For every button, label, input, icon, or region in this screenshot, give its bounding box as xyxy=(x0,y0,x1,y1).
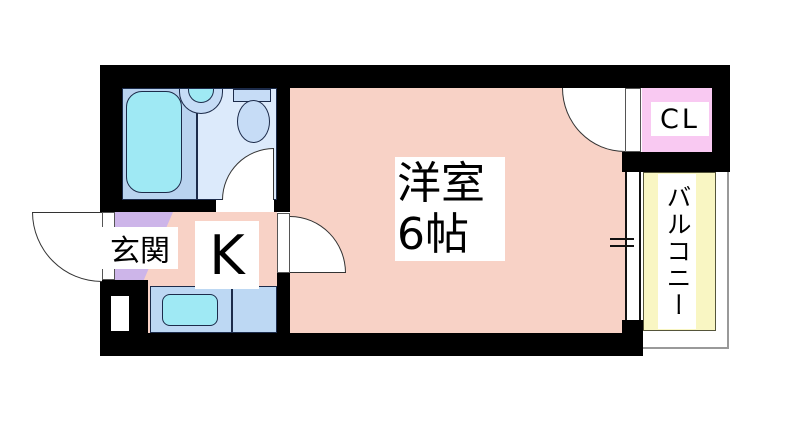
entry-door-swing xyxy=(32,212,102,282)
closet-label: CL xyxy=(651,102,709,136)
kitchen-label-text: K xyxy=(209,224,244,287)
main-room-label: 洋室 6帖 xyxy=(395,157,505,261)
wall-bottom xyxy=(100,333,643,356)
closet-door-leaf xyxy=(625,88,641,152)
kitchen-sink xyxy=(162,294,218,326)
balcony-outer-edge-vertical xyxy=(727,172,729,349)
closet-label-text: CL xyxy=(660,104,700,135)
entrance-label: 玄関 xyxy=(102,227,178,269)
balcony-window-tick-lower xyxy=(610,245,634,247)
wall-partition-lower xyxy=(277,273,290,333)
wall-left-upper xyxy=(100,65,122,212)
wall-partition-upper xyxy=(277,88,290,212)
bathtub xyxy=(126,91,182,193)
main-room-name: 洋室 xyxy=(397,158,485,209)
kitchen-counter-divider xyxy=(231,286,233,333)
wall-bathroom-bottom-left xyxy=(100,200,216,212)
toilet-bowl xyxy=(237,100,270,143)
wall-closet-right xyxy=(712,65,730,172)
wall-top xyxy=(100,65,730,88)
kitchen-label: K xyxy=(195,221,259,289)
balcony-window-tick-upper xyxy=(610,238,634,240)
floorplan-canvas: 玄関 K 洋室 6帖 CL バルコニー xyxy=(0,0,800,425)
wall-window-bottom-block xyxy=(622,320,643,356)
balcony-label-text: バルコニー xyxy=(659,184,695,319)
entrance-label-text: 玄関 xyxy=(110,226,170,270)
entry-step-inset xyxy=(111,296,129,331)
balcony-label: バルコニー xyxy=(658,174,696,329)
main-room-size: 6帖 xyxy=(397,209,469,260)
main-room-door-leaf xyxy=(277,213,290,273)
balcony-outer-edge-bottom xyxy=(643,347,729,349)
